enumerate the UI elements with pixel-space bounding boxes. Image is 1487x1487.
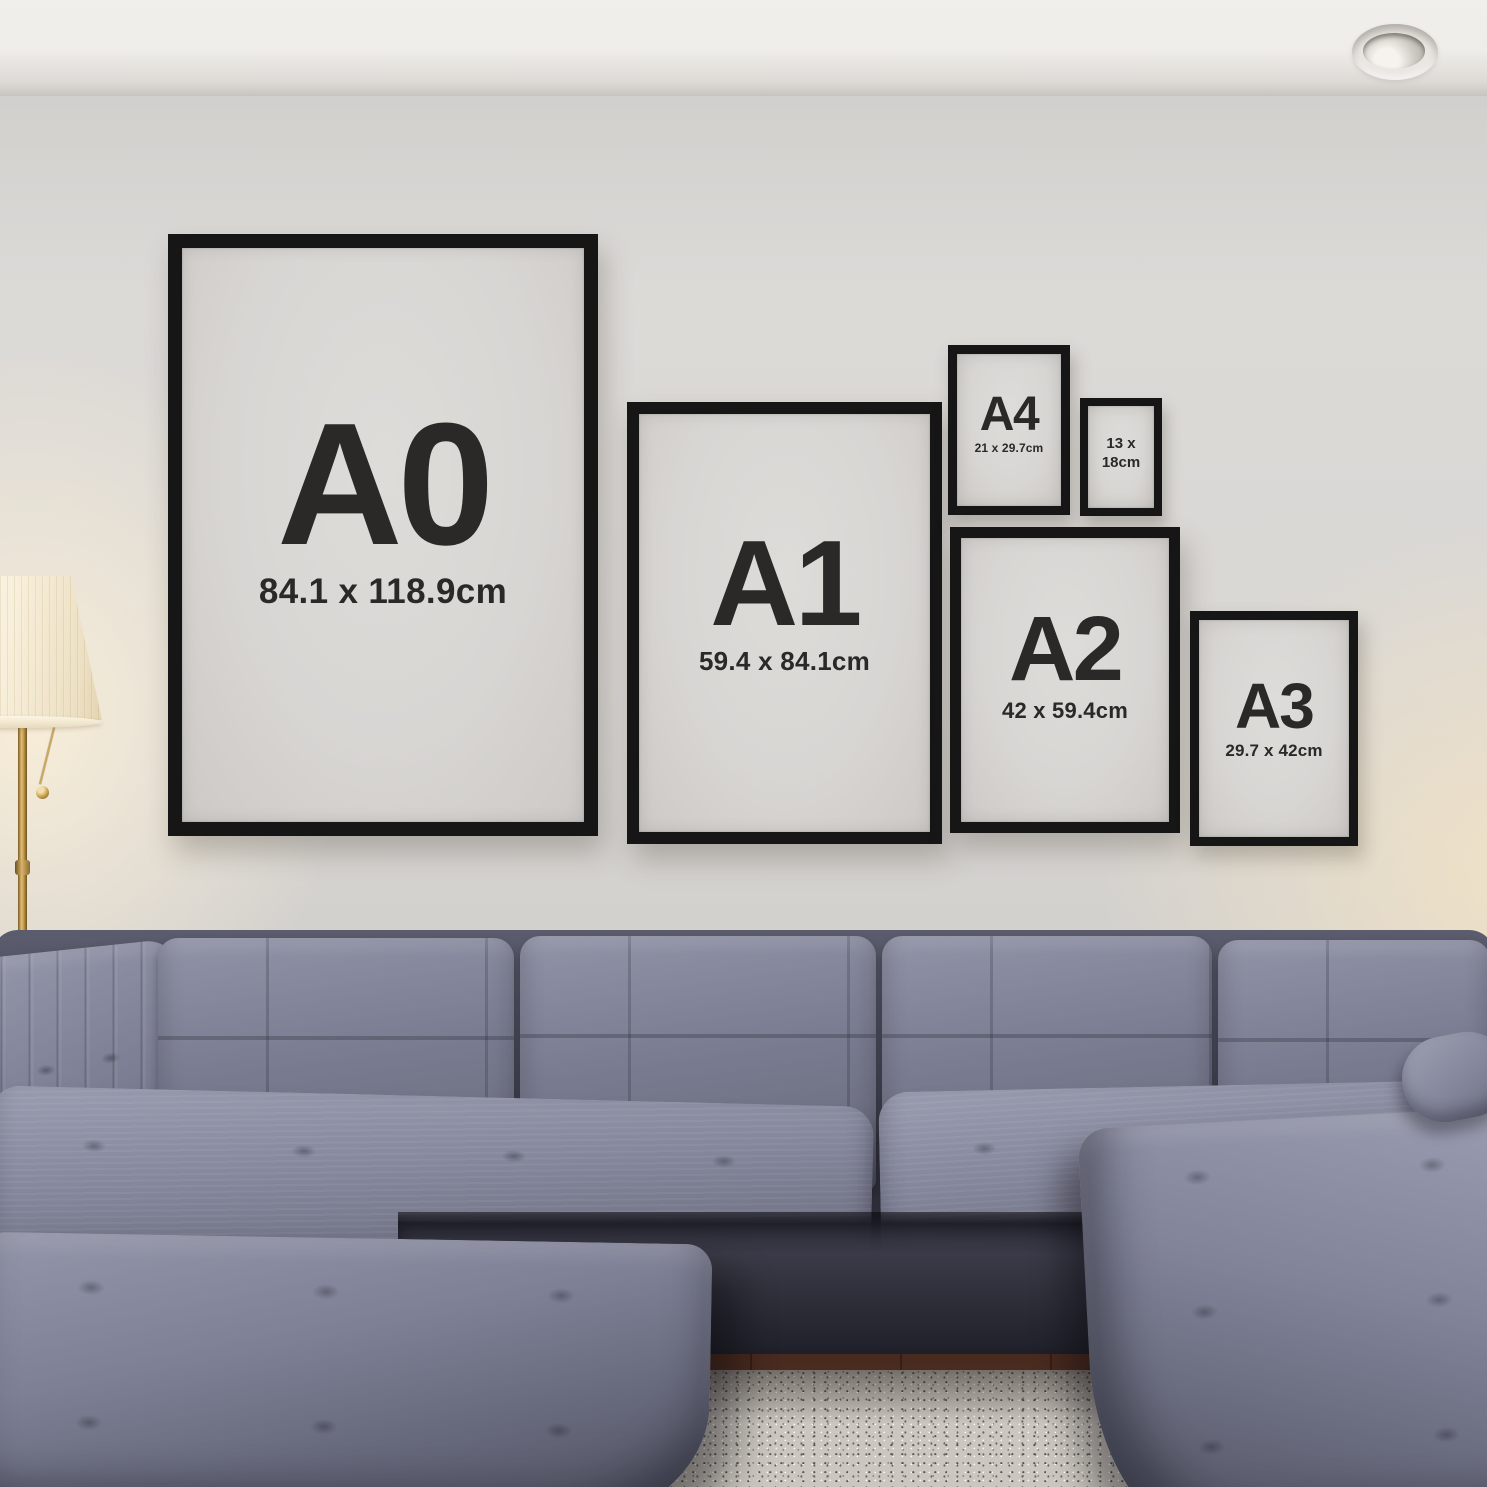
sofa-chaise-right — [1077, 1107, 1487, 1487]
sectional-sofa — [0, 0, 1487, 1487]
living-room-scene: A0 84.1 x 118.9cm A1 59.4 x 84.1cm A4 21… — [0, 0, 1487, 1487]
sofa-chaise-left — [0, 1232, 712, 1487]
